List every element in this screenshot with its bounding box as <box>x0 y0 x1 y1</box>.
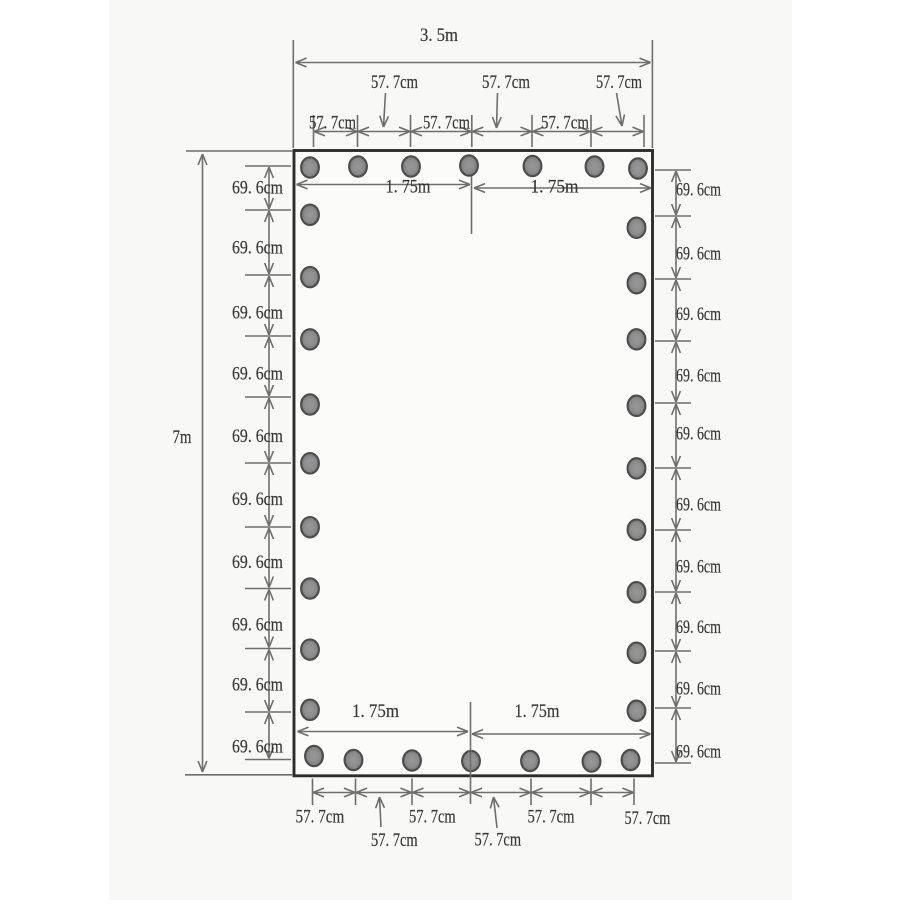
svg-text:69. 6cm: 69. 6cm <box>676 495 721 516</box>
svg-text:1. 75m: 1. 75m <box>531 177 579 198</box>
svg-text:57. 7cm: 57. 7cm <box>482 72 530 93</box>
svg-text:1. 75m: 1. 75m <box>515 701 560 722</box>
svg-text:69. 6cm: 69. 6cm <box>232 737 283 758</box>
svg-text:57. 7cm: 57. 7cm <box>625 808 671 829</box>
svg-text:57. 7cm: 57. 7cm <box>409 807 456 828</box>
svg-text:69. 6cm: 69. 6cm <box>676 244 721 265</box>
svg-text:7m: 7m <box>173 427 192 448</box>
svg-text:69. 6cm: 69. 6cm <box>676 679 721 700</box>
svg-text:57. 7cm: 57. 7cm <box>371 72 418 93</box>
svg-text:57. 7cm: 57. 7cm <box>541 113 589 134</box>
svg-text:69. 6cm: 69. 6cm <box>232 364 283 385</box>
svg-text:69. 6cm: 69. 6cm <box>232 238 283 259</box>
svg-text:57. 7cm: 57. 7cm <box>371 830 418 851</box>
svg-text:69. 6cm: 69. 6cm <box>676 742 721 763</box>
svg-text:57. 7cm: 57. 7cm <box>596 72 642 93</box>
svg-text:69. 6cm: 69. 6cm <box>676 424 721 445</box>
svg-text:1. 75m: 1. 75m <box>352 701 399 722</box>
svg-text:69. 6cm: 69. 6cm <box>232 303 283 324</box>
svg-text:57. 7cm: 57. 7cm <box>475 830 522 851</box>
svg-text:69. 6cm: 69. 6cm <box>232 489 283 510</box>
svg-text:69. 6cm: 69. 6cm <box>232 552 283 573</box>
svg-text:57. 7cm: 57. 7cm <box>296 807 345 828</box>
svg-text:57. 7cm: 57. 7cm <box>423 113 470 134</box>
svg-text:57. 7cm: 57. 7cm <box>309 113 356 134</box>
svg-text:69. 6cm: 69. 6cm <box>676 304 721 325</box>
svg-text:3. 5m: 3. 5m <box>420 25 458 46</box>
svg-text:69. 6cm: 69. 6cm <box>676 557 721 578</box>
svg-text:69. 6cm: 69. 6cm <box>232 426 283 447</box>
svg-text:69. 6cm: 69. 6cm <box>676 617 721 638</box>
svg-text:69. 6cm: 69. 6cm <box>232 675 283 696</box>
svg-text:69. 6cm: 69. 6cm <box>676 180 721 201</box>
svg-text:69. 6cm: 69. 6cm <box>232 615 283 636</box>
svg-text:57. 7cm: 57. 7cm <box>528 807 575 828</box>
svg-text:1. 75m: 1. 75m <box>386 177 431 198</box>
svg-text:69. 6cm: 69. 6cm <box>676 366 721 387</box>
svg-text:69. 6cm: 69. 6cm <box>232 178 283 199</box>
